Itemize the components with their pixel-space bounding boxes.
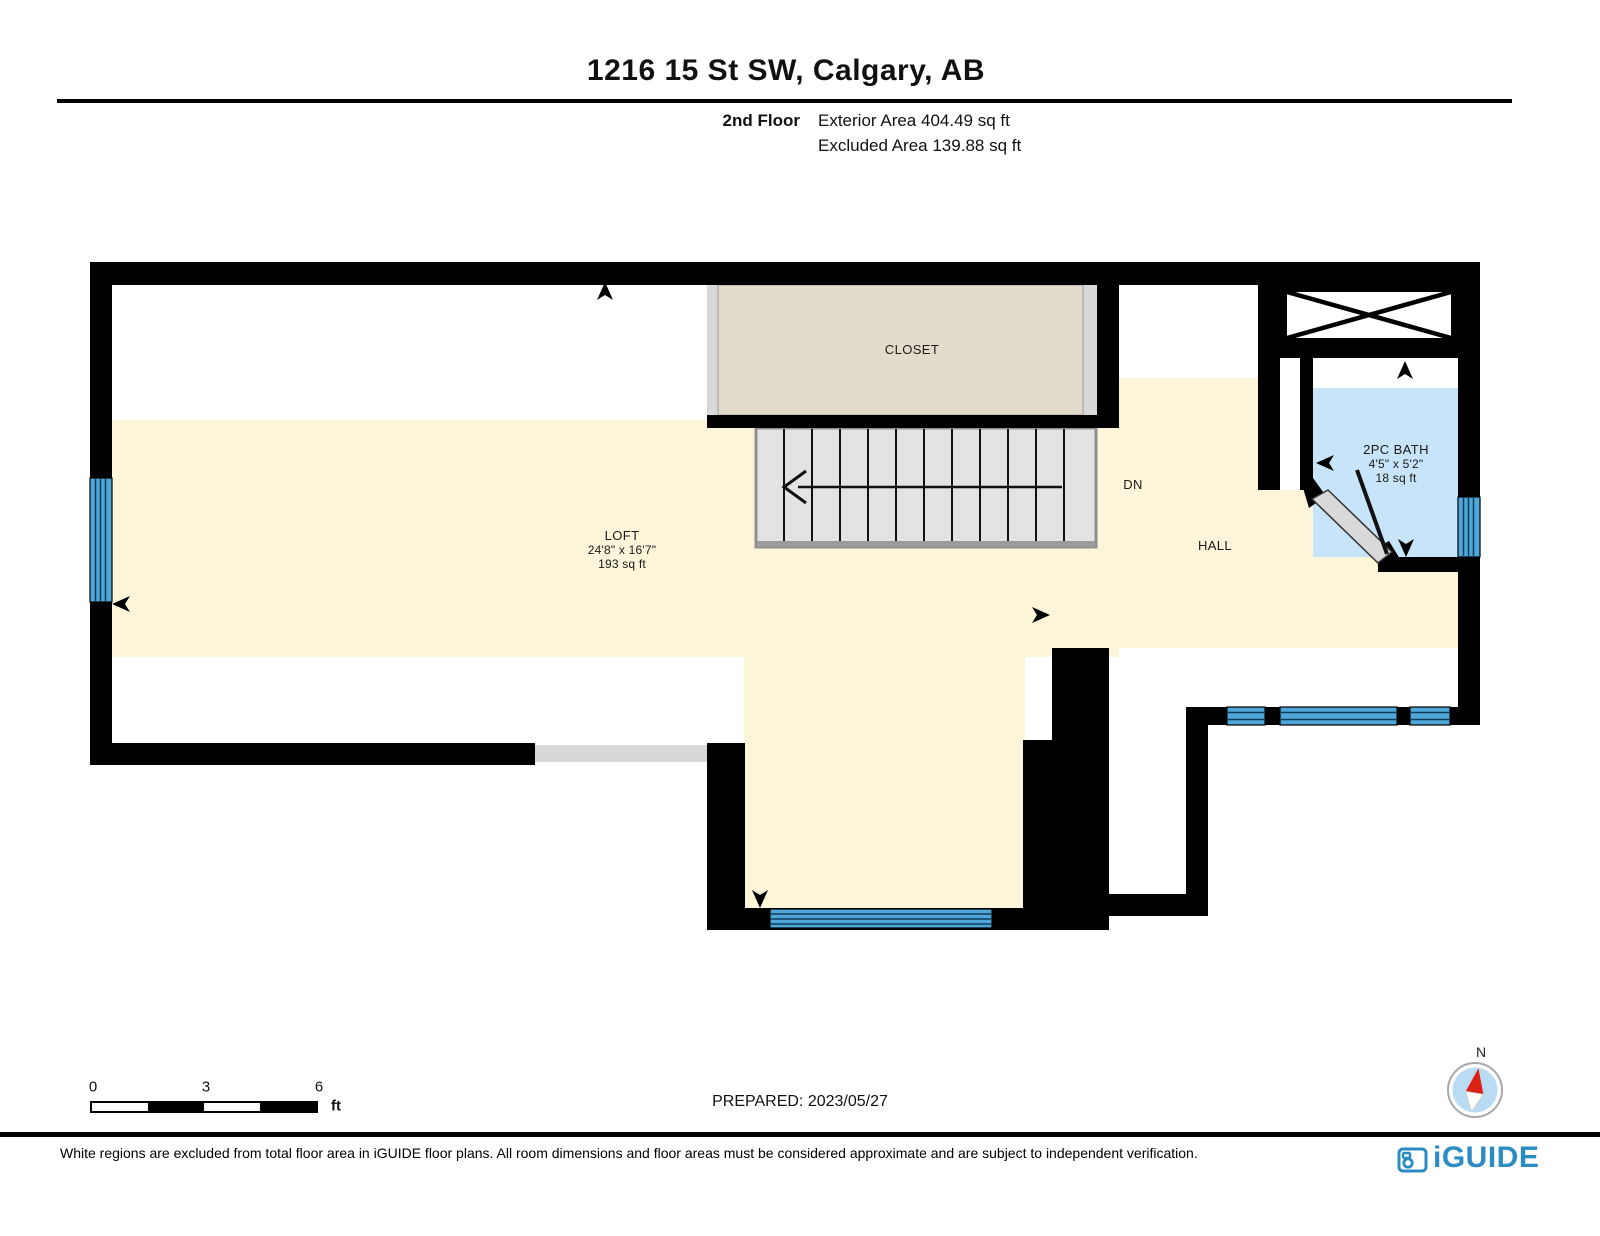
loft-name: LOFT (588, 529, 656, 543)
floorplan-page: { "header": { "title": "1216 15 St SW, C… (0, 0, 1600, 1236)
open-to-below-box (1283, 288, 1455, 342)
hall-label: HALL (1198, 539, 1232, 553)
iguide-logo-icon (1396, 1144, 1430, 1174)
bath-label: 2PC BATH 4'5" x 5'2" 18 sq ft (1363, 443, 1429, 485)
stairs (756, 428, 1096, 547)
loft-dimensions: 24'8" x 16'7" (588, 543, 656, 557)
bath-area: 18 sq ft (1363, 471, 1429, 485)
loft-label: LOFT 24'8" x 16'7" 193 sq ft (588, 529, 656, 571)
closet-label: CLOSET (885, 343, 939, 357)
bath-name: 2PC BATH (1363, 443, 1429, 457)
wall-opening (535, 745, 707, 762)
disclaimer-text: White regions are excluded from total fl… (60, 1145, 1198, 1161)
loft-area: 193 sq ft (588, 557, 656, 571)
bath-dimensions: 4'5" x 5'2" (1363, 457, 1429, 471)
prepared-date-label: PREPARED: 2023/05/27 (0, 1093, 1600, 1111)
iguide-logo-text: iGUIDE (1433, 1141, 1539, 1175)
footer-divider (0, 1132, 1600, 1137)
arrow-up-icon (1397, 361, 1413, 379)
floor-plan-drawing (0, 0, 1600, 1236)
compass-north-label: N (1476, 1044, 1486, 1060)
stairs-dn-label: DN (1123, 478, 1143, 492)
